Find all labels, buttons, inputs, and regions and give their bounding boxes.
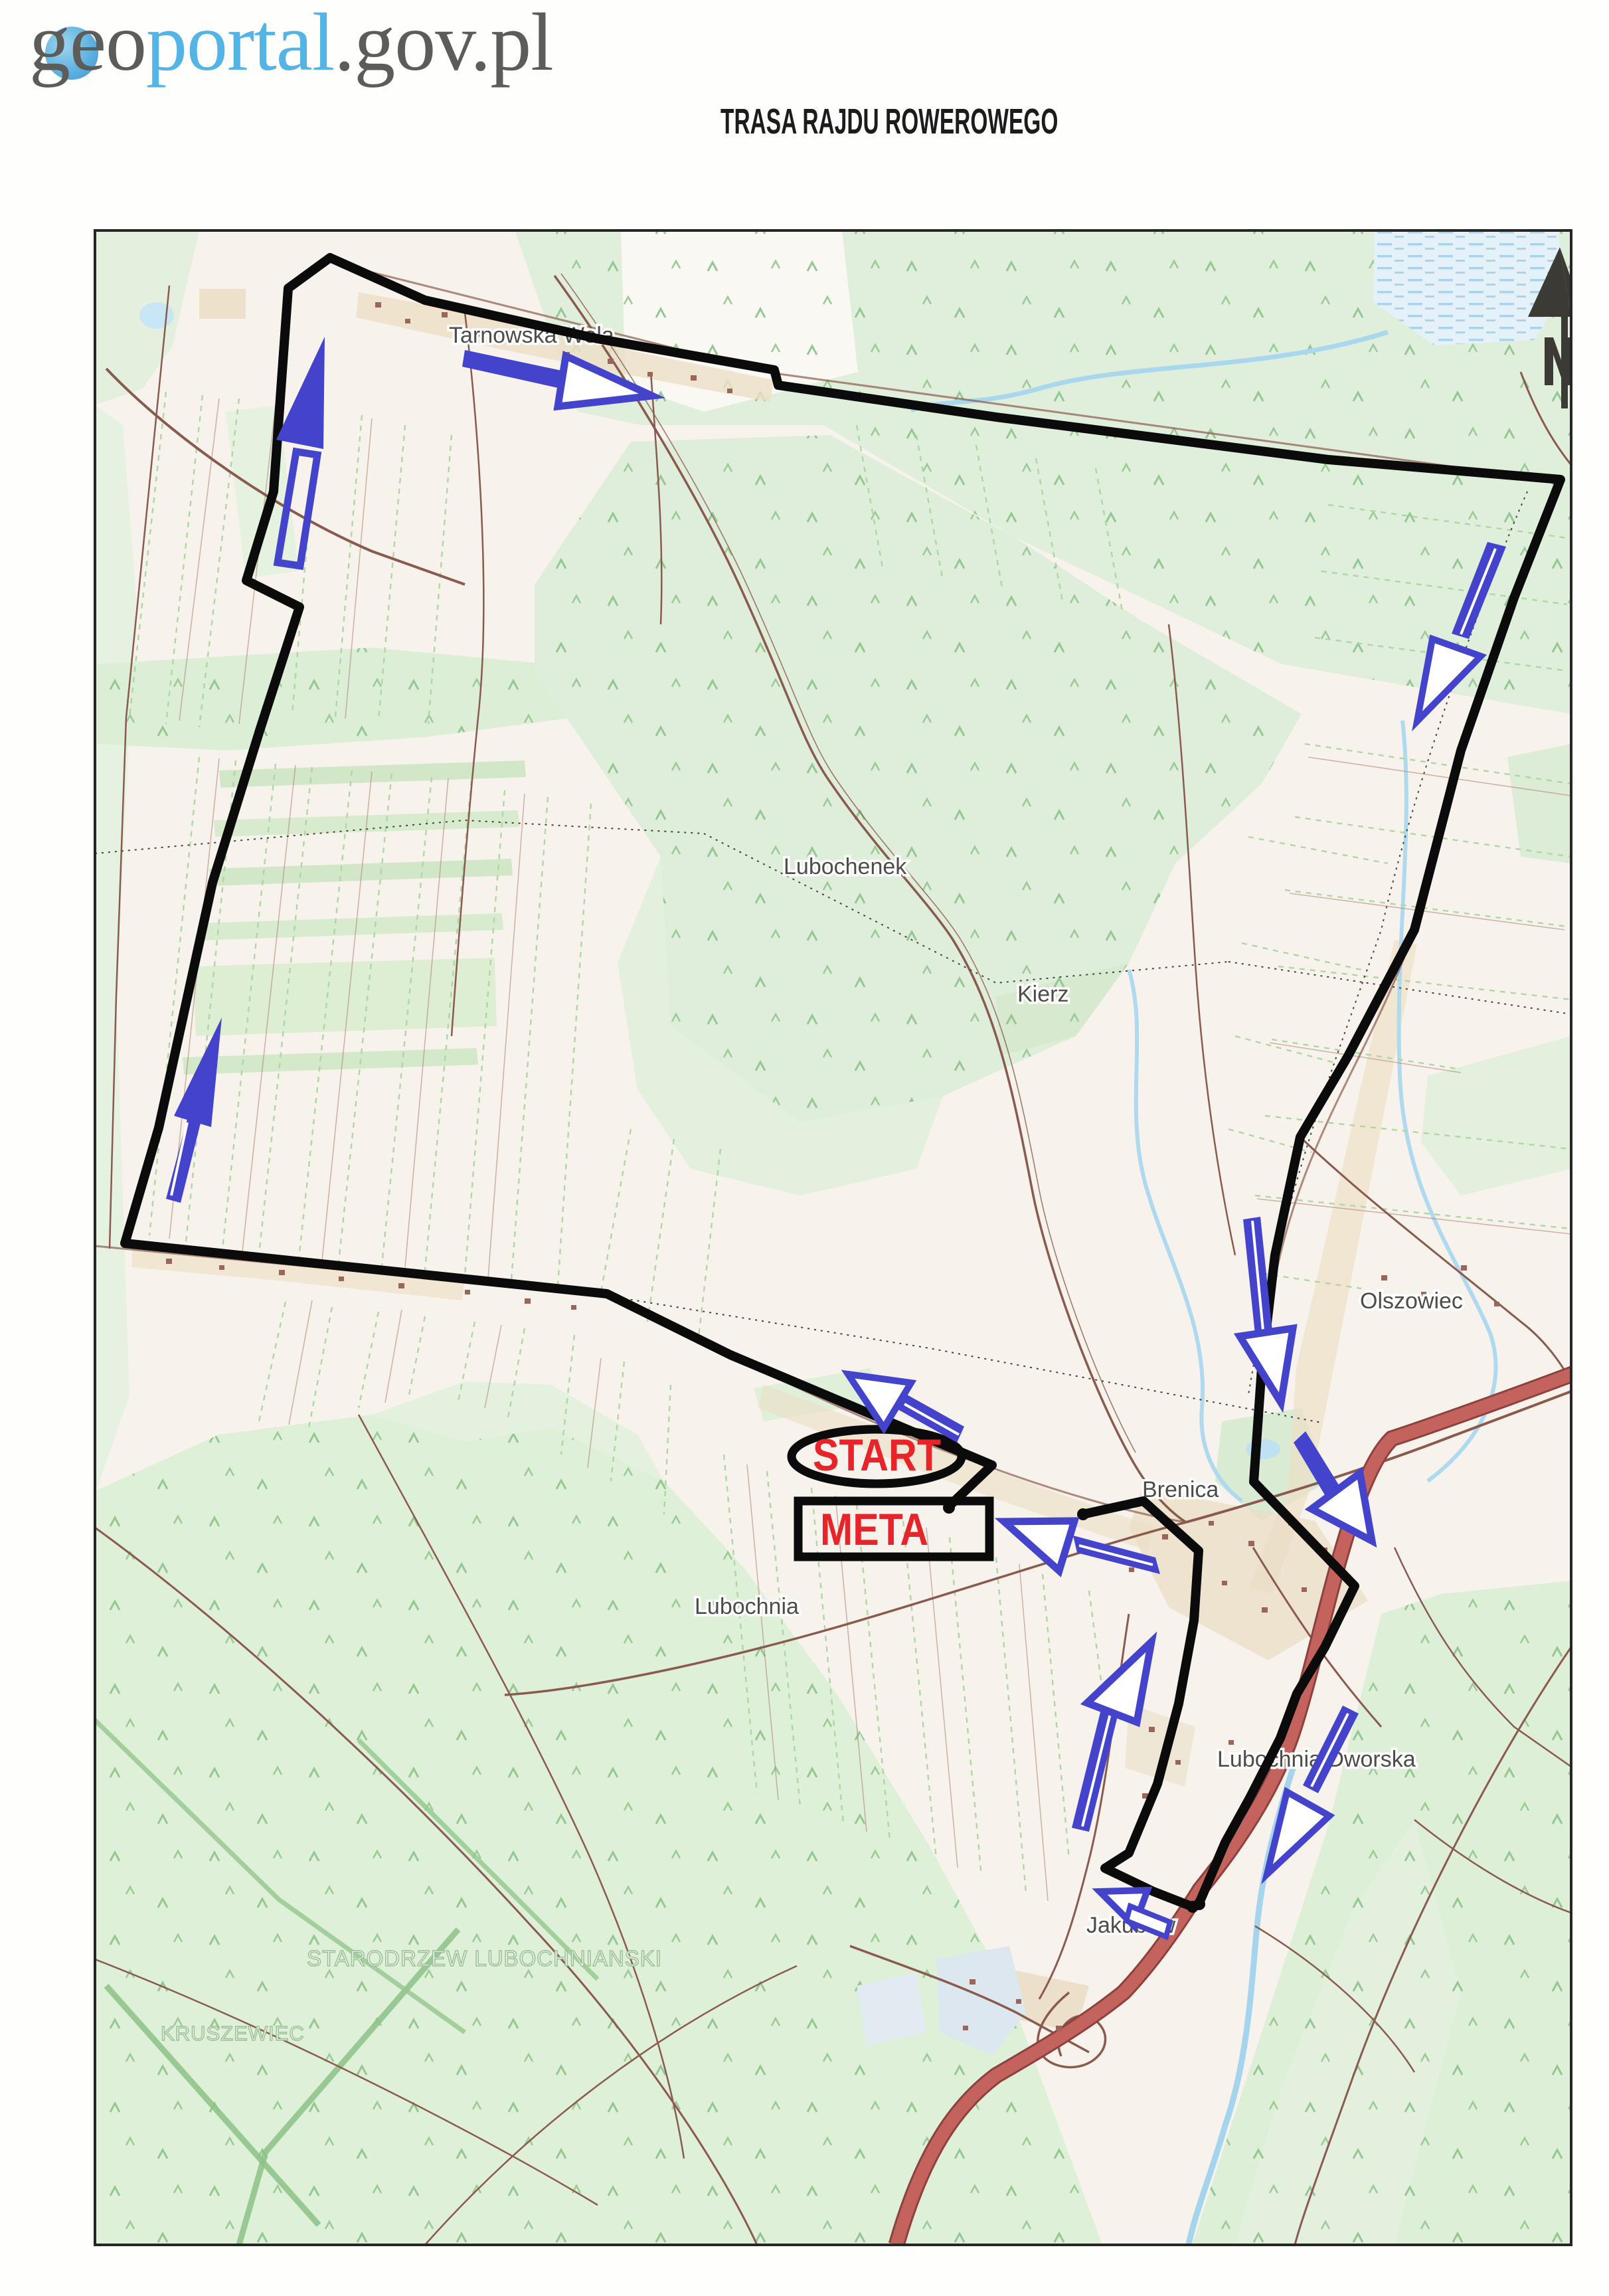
svg-text:N: N <box>1587 1587 1604 1613</box>
svg-text:START: START <box>813 1430 941 1480</box>
svg-text:Olszowiec: Olszowiec <box>1360 1288 1463 1314</box>
svg-text:Brenica: Brenica <box>1142 1477 1219 1502</box>
svg-text:Lubochenek: Lubochenek <box>784 854 907 879</box>
svg-text:KRUSZEWIEC: KRUSZEWIEC <box>161 2022 305 2045</box>
svg-text:Lubochnia: Lubochnia <box>695 1594 799 1619</box>
svg-text:META: META <box>820 1504 928 1555</box>
svg-text:STARODRZEW LUBOCHNIANSKI: STARODRZEW LUBOCHNIANSKI <box>307 1946 662 1971</box>
svg-text:Kierz: Kierz <box>1017 982 1068 1007</box>
